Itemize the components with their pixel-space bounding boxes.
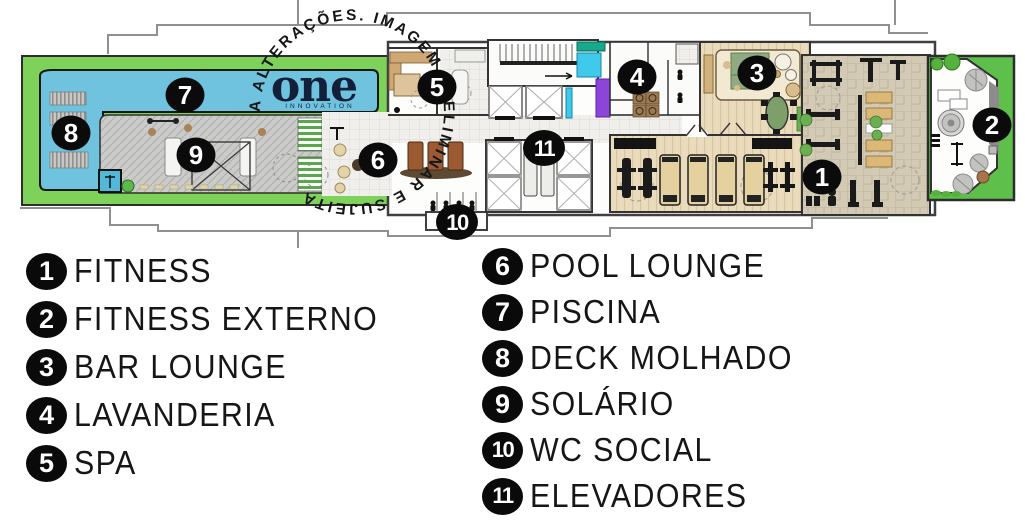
page-root: { "plan": { "watermark_text": "A ALTERAÇ… xyxy=(0,0,1025,530)
plan-marker-elevadores: 11 xyxy=(523,130,565,166)
legend-item-deck-molhado: 8 DECK MOLHADO xyxy=(482,339,816,377)
one-innovation-logo: one INNOVATION xyxy=(271,61,357,112)
plan-marker-piscina: 7 xyxy=(166,78,205,113)
legend-badge-8: 8 xyxy=(482,340,523,377)
planter-strip-top xyxy=(298,118,322,151)
logo-subtext: INNOVATION xyxy=(285,103,354,110)
legend-item-spa: 5 SPA xyxy=(26,444,405,482)
legend-badge-11: 11 xyxy=(482,478,523,515)
legend-label-spa: SPA xyxy=(74,444,137,482)
legend-badge-7: 7 xyxy=(482,294,523,331)
legend-label-wc-social: WC SOCIAL xyxy=(530,431,713,469)
svg-text:4: 4 xyxy=(630,62,645,92)
legend-item-lavanderia: 4 LAVANDERIA xyxy=(26,396,405,434)
legend-badge-4: 4 xyxy=(26,397,67,434)
floor-plan: one INNOVATION A ALTERAÇÕES. IMAGEM PREL… xyxy=(0,0,1025,248)
legend-item-pool-lounge: 6 POOL LOUNGE xyxy=(482,247,816,285)
legend-badge-3: 3 xyxy=(26,349,67,386)
plan-marker-lavanderia: 4 xyxy=(618,60,657,95)
svg-text:9: 9 xyxy=(189,140,203,170)
legend-item-piscina: 7 PISCINA xyxy=(482,293,816,331)
svg-text:10: 10 xyxy=(446,210,469,235)
svg-text:7: 7 xyxy=(178,80,192,110)
svg-text:8: 8 xyxy=(64,118,78,148)
plan-marker-fitness-externo: 2 xyxy=(973,108,1012,143)
legend-label-deck-molhado: DECK MOLHADO xyxy=(530,339,793,377)
plan-marker-fitness: 1 xyxy=(803,160,842,195)
legend-label-elevadores: ELEVADORES xyxy=(530,477,747,515)
plan-marker-deck-molhado: 8 xyxy=(52,116,91,151)
legend-label-fitness: FITNESS xyxy=(74,252,212,290)
legend-badge-2: 2 xyxy=(26,301,67,338)
legend-badge-9: 9 xyxy=(482,386,523,423)
plan-marker-wc-social: 10 xyxy=(436,204,478,240)
svg-text:6: 6 xyxy=(371,145,385,175)
legend-label-fitness-externo: FITNESS EXTERNO xyxy=(74,300,378,338)
svg-text:11: 11 xyxy=(534,136,556,161)
legend-label-pool-lounge: POOL LOUNGE xyxy=(530,247,765,285)
plan-marker-pool-lounge: 6 xyxy=(359,143,398,178)
legend-item-fitness-externo: 2 FITNESS EXTERNO xyxy=(26,300,405,338)
legend-badge-6: 6 xyxy=(482,248,523,285)
plan-marker-bar-lounge: 3 xyxy=(738,56,777,91)
elevators-upper xyxy=(489,86,562,120)
legend-badge-1: 1 xyxy=(26,253,67,290)
legend-badge-10: 10 xyxy=(482,432,523,469)
svg-text:3: 3 xyxy=(750,58,764,88)
legend-item-solario: 9 SOLÁRIO xyxy=(482,385,816,423)
legend-label-solario: SOLÁRIO xyxy=(530,385,675,423)
planter-dot xyxy=(122,180,134,192)
fitness-cardio-zone xyxy=(610,125,802,212)
legend-item-wc-social: 10 WC SOCIAL xyxy=(482,431,816,469)
legend-label-piscina: PISCINA xyxy=(530,293,661,331)
legend-left-column: 1 FITNESS 2 FITNESS EXTERNO 3 BAR LOUNGE… xyxy=(26,252,405,492)
svg-text:2: 2 xyxy=(985,110,999,140)
legend-item-fitness: 1 FITNESS xyxy=(26,252,405,290)
legend-item-bar-lounge: 3 BAR LOUNGE xyxy=(26,348,405,386)
legend-item-elevadores: 11 ELEVADORES xyxy=(482,477,816,515)
legend-label-lavanderia: LAVANDERIA xyxy=(74,396,276,434)
plan-marker-solario: 9 xyxy=(177,138,216,173)
svg-text:1: 1 xyxy=(815,162,829,192)
svg-text:5: 5 xyxy=(430,72,444,102)
legend-right-column: 6 POOL LOUNGE 7 PISCINA 8 DECK MOLHADO 9… xyxy=(482,247,816,523)
legend-badge-5: 5 xyxy=(26,445,67,482)
plan-marker-spa: 5 xyxy=(418,70,457,105)
legend-label-bar-lounge: BAR LOUNGE xyxy=(74,348,287,386)
